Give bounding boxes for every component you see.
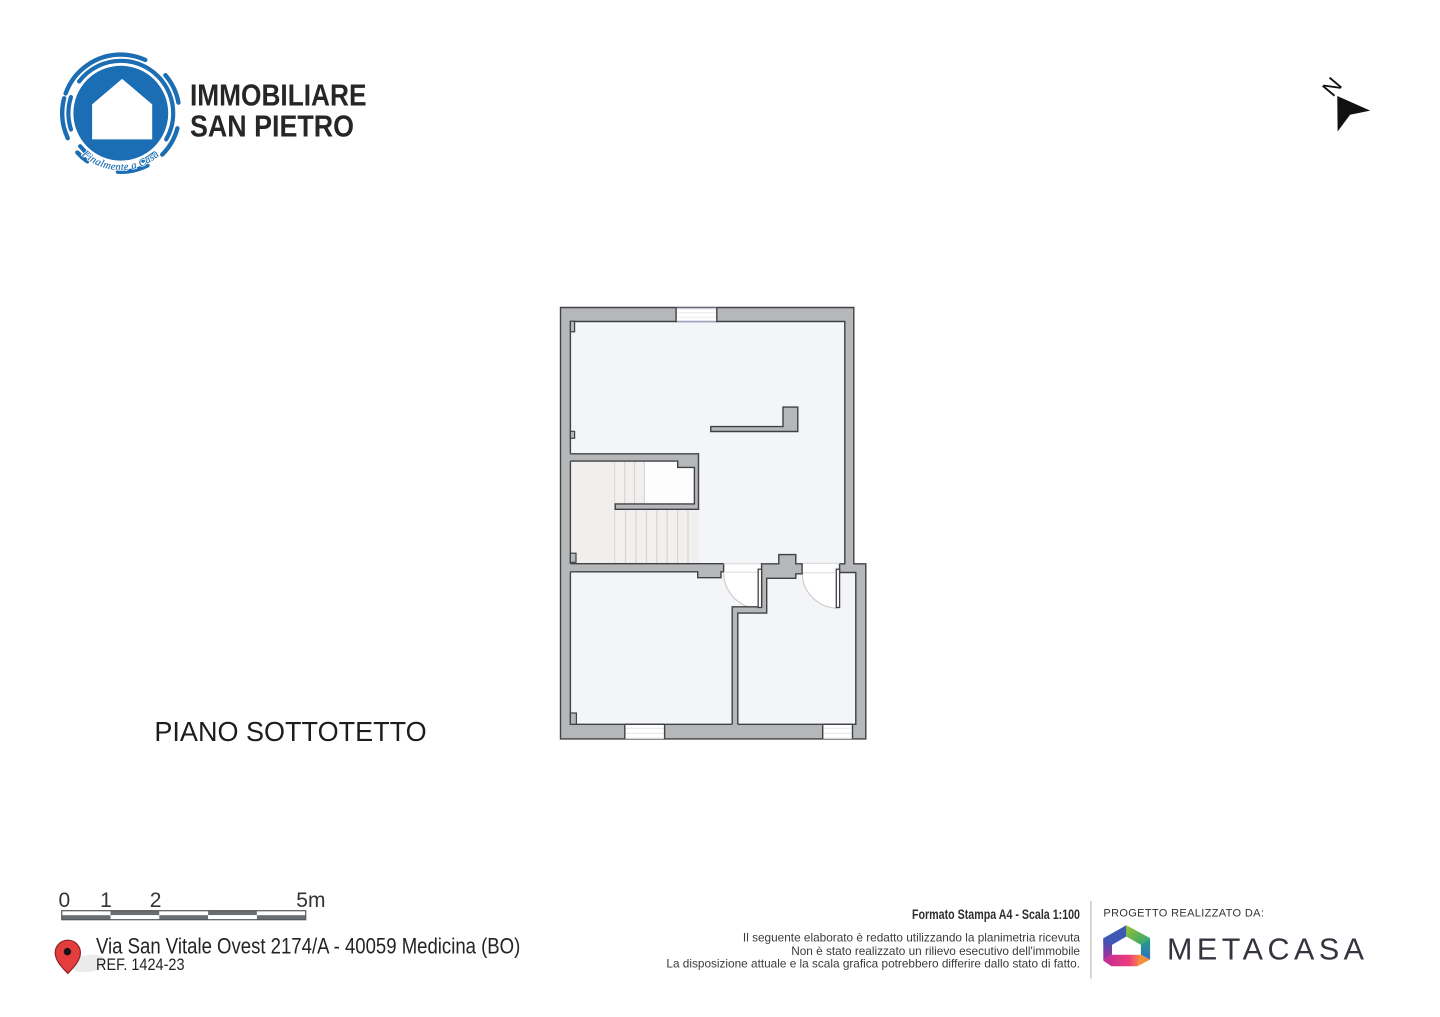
- svg-text:Formato Stampa A4 - Scala 1:10: Formato Stampa A4 - Scala 1:100: [912, 907, 1080, 922]
- svg-text:PIANO SOTTOTETTO: PIANO SOTTOTETTO: [154, 716, 426, 747]
- svg-text:2: 2: [150, 889, 162, 912]
- svg-text:Il seguente elaborato è redatt: Il seguente elaborato è redatto utilizza…: [743, 931, 1081, 945]
- svg-text:N: N: [1317, 73, 1347, 102]
- svg-text:La disposizione attuale e la s: La disposizione attuale e la scala grafi…: [666, 956, 1080, 970]
- svg-text:5m: 5m: [296, 889, 325, 912]
- svg-text:METACASA: METACASA: [1167, 933, 1365, 967]
- svg-text:PROGETTO REALIZZATO DA:: PROGETTO REALIZZATO DA:: [1103, 908, 1264, 920]
- svg-text:SAN PIETRO: SAN PIETRO: [190, 109, 354, 144]
- svg-text:REF. 1424-23: REF. 1424-23: [96, 955, 185, 974]
- svg-text:1: 1: [100, 889, 112, 912]
- svg-text:0: 0: [59, 889, 71, 912]
- svg-text:IMMOBILIARE: IMMOBILIARE: [190, 78, 367, 113]
